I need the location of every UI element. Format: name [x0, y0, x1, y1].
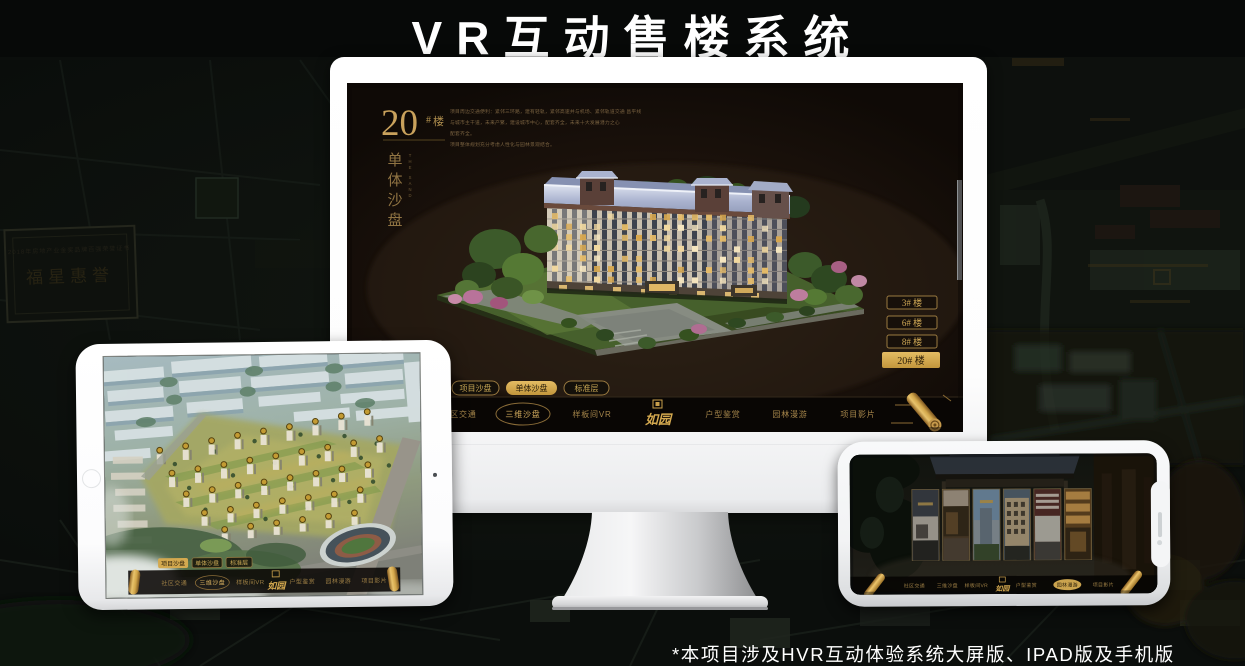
svg-text:D: D [408, 193, 411, 198]
svg-text:项目影片: 项目影片 [840, 409, 875, 419]
svg-text:楼: 楼 [433, 114, 444, 128]
svg-text:福星惠誉: 福星惠誉 [26, 265, 115, 287]
svg-text:项目沙盘: 项目沙盘 [161, 559, 185, 567]
svg-text:样板间VR: 样板间VR [572, 409, 611, 419]
svg-text:与城市主干道，未来产繁，建设城市中心，配套齐全，未来十大发展: 与城市主干道，未来产繁，建设城市中心，配套齐全，未来十大发展潜力之心 [450, 119, 620, 126]
svg-text:园林漫游: 园林漫游 [772, 409, 807, 419]
svg-text:T: T [409, 153, 412, 158]
svg-text:项目影片: 项目影片 [1093, 581, 1114, 588]
svg-text:20: 20 [381, 103, 418, 144]
svg-text:户型鉴赏: 户型鉴赏 [1016, 582, 1037, 589]
svg-text:社区交通: 社区交通 [904, 582, 925, 589]
svg-text:N: N [408, 187, 411, 192]
svg-text:样板间VR: 样板间VR [965, 582, 989, 589]
svg-text:20# 楼: 20# 楼 [897, 354, 925, 367]
svg-text:如园: 如园 [267, 581, 287, 591]
svg-text:6# 楼: 6# 楼 [902, 317, 922, 328]
svg-text:项目周边交通便利：紧邻三环路，建有轻轨，紧邻高速并与机场、紧: 项目周边交通便利：紧邻三环路，建有轻轨，紧邻高速并与机场、紧邻轨道交通 昌平线 [450, 108, 641, 115]
svg-text:体: 体 [387, 172, 402, 189]
svg-text:8# 楼: 8# 楼 [902, 336, 922, 347]
svg-text:配套齐全。: 配套齐全。 [450, 130, 475, 137]
svg-text:S: S [409, 175, 412, 180]
svg-text:A: A [409, 181, 412, 186]
svg-text:E: E [409, 165, 412, 170]
svg-text:标准层: 标准层 [230, 559, 248, 567]
svg-text:三维沙盘: 三维沙盘 [505, 409, 540, 419]
svg-text:标准层: 标准层 [575, 383, 599, 393]
svg-text:盘: 盘 [387, 211, 402, 229]
svg-text:户型鉴赏: 户型鉴赏 [705, 409, 740, 419]
svg-text:项目沙盘: 项目沙盘 [460, 383, 492, 393]
svg-text:沙: 沙 [387, 193, 402, 209]
svg-text:单: 单 [387, 152, 402, 169]
svg-text:园林漫游: 园林漫游 [1057, 582, 1078, 589]
svg-text:单体沙盘: 单体沙盘 [516, 383, 548, 393]
svg-text:#: # [426, 115, 431, 126]
svg-text:如园: 如园 [645, 412, 673, 427]
svg-text:项目整体规划充分考虑人性化与园林景观结合。: 项目整体规划充分考虑人性化与园林景观结合。 [450, 141, 555, 148]
svg-text:三维沙盘: 三维沙盘 [937, 582, 958, 589]
svg-text:3# 楼: 3# 楼 [902, 297, 922, 308]
svg-text:H: H [408, 159, 411, 164]
